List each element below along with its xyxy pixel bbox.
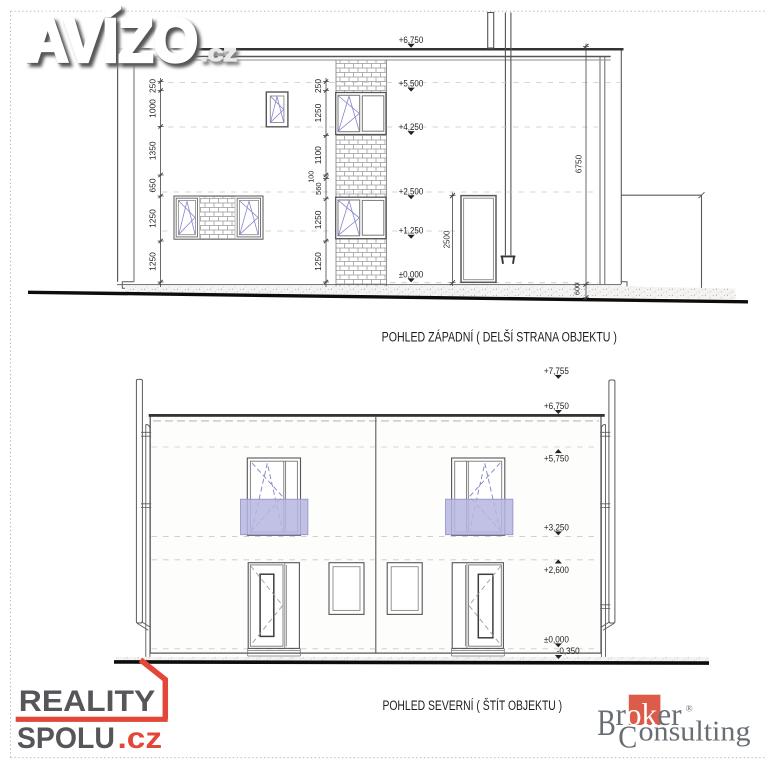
svg-text:®: ® <box>686 704 693 715</box>
svg-text:AVÍZO: AVÍZO <box>27 7 198 75</box>
svg-text:REALITY: REALITY <box>19 685 156 718</box>
svg-text:1250: 1250 <box>313 103 323 122</box>
svg-text:600: 600 <box>573 283 582 295</box>
svg-text:1250: 1250 <box>313 210 323 229</box>
svg-text:6750: 6750 <box>574 154 584 173</box>
svg-text:.cz: .cz <box>200 40 237 66</box>
svg-text:POHLED ZÁPADNÍ ( DELŠÍ STRANA: POHLED ZÁPADNÍ ( DELŠÍ STRANA OBJEKTU ) <box>382 330 617 345</box>
svg-text:1250: 1250 <box>313 252 323 271</box>
svg-text:1100: 1100 <box>313 146 323 164</box>
svg-text:B: B <box>597 703 616 744</box>
svg-text:1250: 1250 <box>148 252 158 271</box>
svg-text:1350: 1350 <box>148 141 158 160</box>
svg-text:SPOLU: SPOLU <box>17 722 115 755</box>
svg-text:.cz: .cz <box>118 722 163 755</box>
svg-text:+5,750: +5,750 <box>544 454 569 465</box>
svg-text:1250: 1250 <box>148 209 158 228</box>
svg-text:POHLED SEVERNÍ ( ŠTÍT OBJEKTU: POHLED SEVERNÍ ( ŠTÍT OBJEKTU ) <box>382 698 562 713</box>
svg-text:650: 650 <box>148 178 158 192</box>
svg-text:1000: 1000 <box>148 99 158 118</box>
svg-text:+2,600: +2,600 <box>544 565 569 576</box>
svg-text:100: 100 <box>307 171 316 183</box>
svg-text:560: 560 <box>314 182 323 195</box>
svg-text:250: 250 <box>313 79 323 93</box>
svg-text:2500: 2500 <box>443 230 452 248</box>
svg-text:onsulting: onsulting <box>639 717 751 748</box>
svg-text:C: C <box>618 719 637 754</box>
svg-text:250: 250 <box>148 79 158 93</box>
